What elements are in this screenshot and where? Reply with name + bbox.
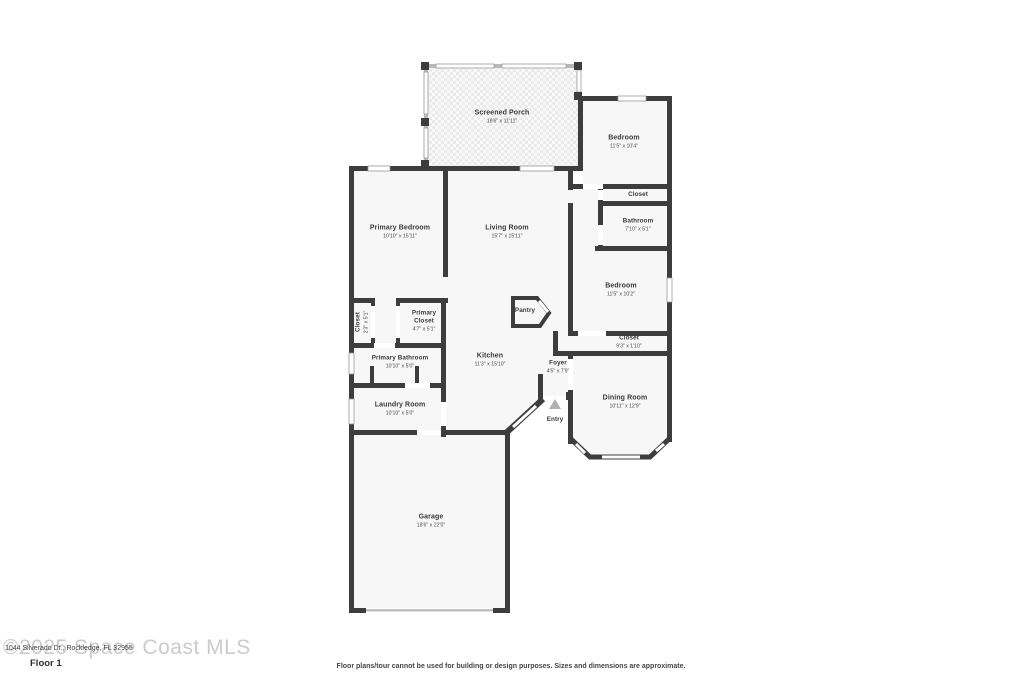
room-label-primary-closet: Primary Closet 4'7" x 5'1"	[406, 310, 442, 333]
room-label-closet-hall: Closet 9'3" x 1'10"	[616, 335, 642, 350]
entry-direction-marker	[549, 399, 561, 409]
room-label-screened-porch: Screened Porch 18'6" x 11'11"	[475, 110, 530, 125]
room-label-entry: Entry	[547, 416, 564, 424]
garage-door	[366, 609, 493, 611]
room-label-primary-bathroom: Primary Bathroom 10'10" x 5'0"	[372, 355, 429, 370]
room-label-dining-room: Dining Room 10'11" x 12'9"	[603, 395, 648, 410]
floor-number-label: Floor 1	[30, 658, 62, 669]
room-label-living-room: Living Room 15'7" x 15'11"	[485, 225, 529, 240]
room-label-garage: Garage 18'6" x 22'0"	[417, 514, 445, 529]
room-label-bedroom-top: Bedroom 11'5" x 10'4"	[608, 135, 639, 150]
room-label-closet-small: Closet 2'3" x 5'1"	[355, 311, 370, 334]
property-address: 1044 Silverado Dr., Rockledge, FL 32955	[5, 645, 133, 652]
room-label-foyer: Foyer 4'5" x 7'9"	[547, 360, 570, 375]
room-label-kitchen: Kitchen 11'3" x 15'10"	[475, 353, 506, 368]
room-label-bedroom-mid: Bedroom 11'5" x 10'2"	[605, 283, 636, 298]
room-label-laundry-room: Laundry Room 10'10" x 5'0"	[375, 402, 426, 417]
room-label-bathroom: Bathroom 7'10" x 5'1"	[623, 218, 654, 233]
floor-plan-drawing	[0, 0, 1024, 683]
room-label-closet-top: Closet	[628, 191, 648, 199]
disclaimer-text: Floor plans/tour cannot be used for buil…	[337, 663, 686, 670]
room-label-primary-bedroom: Primary Bedroom 10'10" x 15'11"	[370, 225, 430, 240]
floor-plan-page: Screened Porch 18'6" x 11'11" Bedroom 11…	[0, 0, 1024, 683]
room-label-pantry: Pantry	[515, 307, 535, 315]
